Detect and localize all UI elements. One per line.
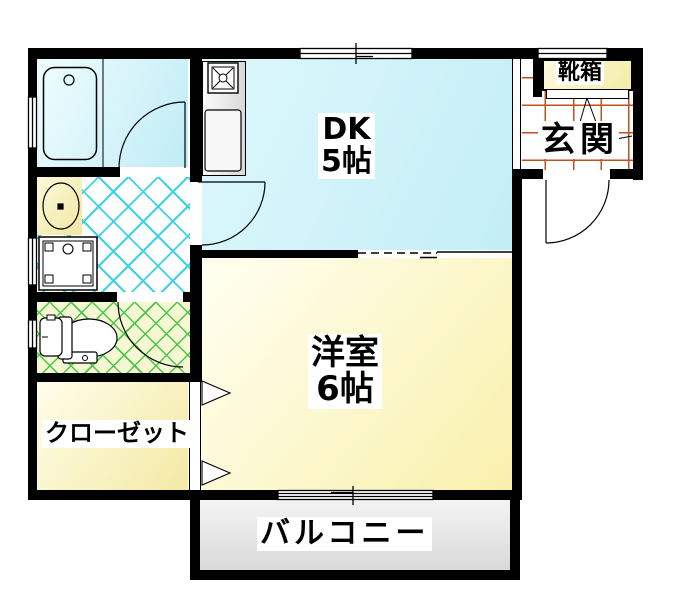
- toilet-icon: [40, 315, 117, 363]
- western-room-size: 6帖: [311, 371, 379, 407]
- dk-name: DK: [321, 114, 372, 146]
- western-room-name: 洋室: [311, 335, 379, 371]
- window-washroom-left: [29, 238, 37, 285]
- stove-icon: [208, 63, 238, 93]
- washbasin-icon: [43, 183, 79, 229]
- washing-machine-icon: [39, 237, 97, 290]
- toilet-door: [118, 302, 183, 367]
- window-balcony-door: [278, 486, 433, 505]
- window-toilet-left: [29, 320, 37, 348]
- washroom-door: [198, 182, 265, 245]
- dk-size: 5帖: [321, 146, 372, 178]
- shoe-box-label: 靴箱: [556, 61, 604, 85]
- window-dk-top: [300, 43, 412, 64]
- kitchen-sink-icon: [205, 110, 241, 171]
- bathtub-icon: [44, 68, 97, 160]
- window-bathroom-left: [29, 97, 37, 148]
- dk-label: DK 5帖: [318, 113, 375, 179]
- floor-plan: DK 5帖 洋室 6帖 バルコニー クローゼット 玄関 靴箱: [0, 0, 678, 616]
- balcony-label: バルコニー: [257, 517, 432, 551]
- window-entrance-top: [538, 49, 607, 59]
- entrance-label: 玄関: [538, 121, 619, 159]
- western-room-label: 洋室 6帖: [308, 334, 382, 409]
- dk-western-opening: [358, 252, 512, 258]
- closet-door-triangles: [202, 381, 230, 485]
- shoe-box-caret: [580, 98, 596, 122]
- bathroom-door: [119, 102, 185, 168]
- entrance-door: [546, 180, 609, 243]
- closet-label: クローゼット: [42, 420, 192, 448]
